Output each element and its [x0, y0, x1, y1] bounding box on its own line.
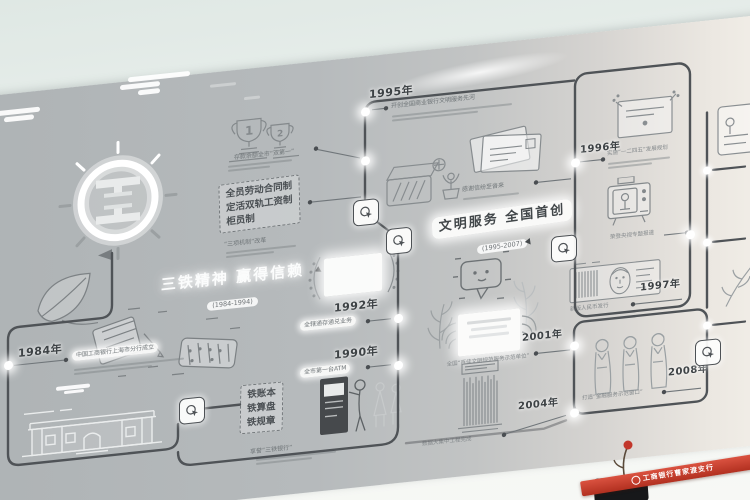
touch-point-icon	[386, 227, 412, 256]
timeline-node	[686, 229, 695, 239]
timeline-node	[361, 107, 370, 117]
ribbon-text: 工商银行曹家渡支行	[642, 463, 714, 482]
timeline-node	[361, 156, 370, 166]
timeline-node	[703, 238, 711, 247]
timeline-node	[703, 321, 711, 330]
timeline-network	[0, 3, 750, 500]
photo-of-history-wall: 1 2 存款余额全市“双第一” 全员劳动合同制 定活双轨工资制 柜员制 “三项机…	[0, 0, 750, 500]
timeline-node	[570, 408, 579, 418]
timeline-wall: 1 2 存款余额全市“双第一” 全员劳动合同制 定活双轨工资制 柜员制 “三项机…	[0, 3, 750, 500]
timeline-node	[4, 360, 13, 370]
timeline-node	[703, 166, 711, 175]
timeline-node	[570, 341, 579, 351]
touch-point-icon	[179, 396, 205, 425]
timeline-node	[394, 360, 403, 370]
touch-point-icon	[551, 234, 577, 263]
timeline-node	[571, 157, 580, 167]
touch-point-icon	[695, 338, 721, 367]
icbc-roundel-icon	[630, 475, 640, 485]
timeline-node	[394, 313, 403, 323]
touch-point-icon	[353, 198, 379, 227]
